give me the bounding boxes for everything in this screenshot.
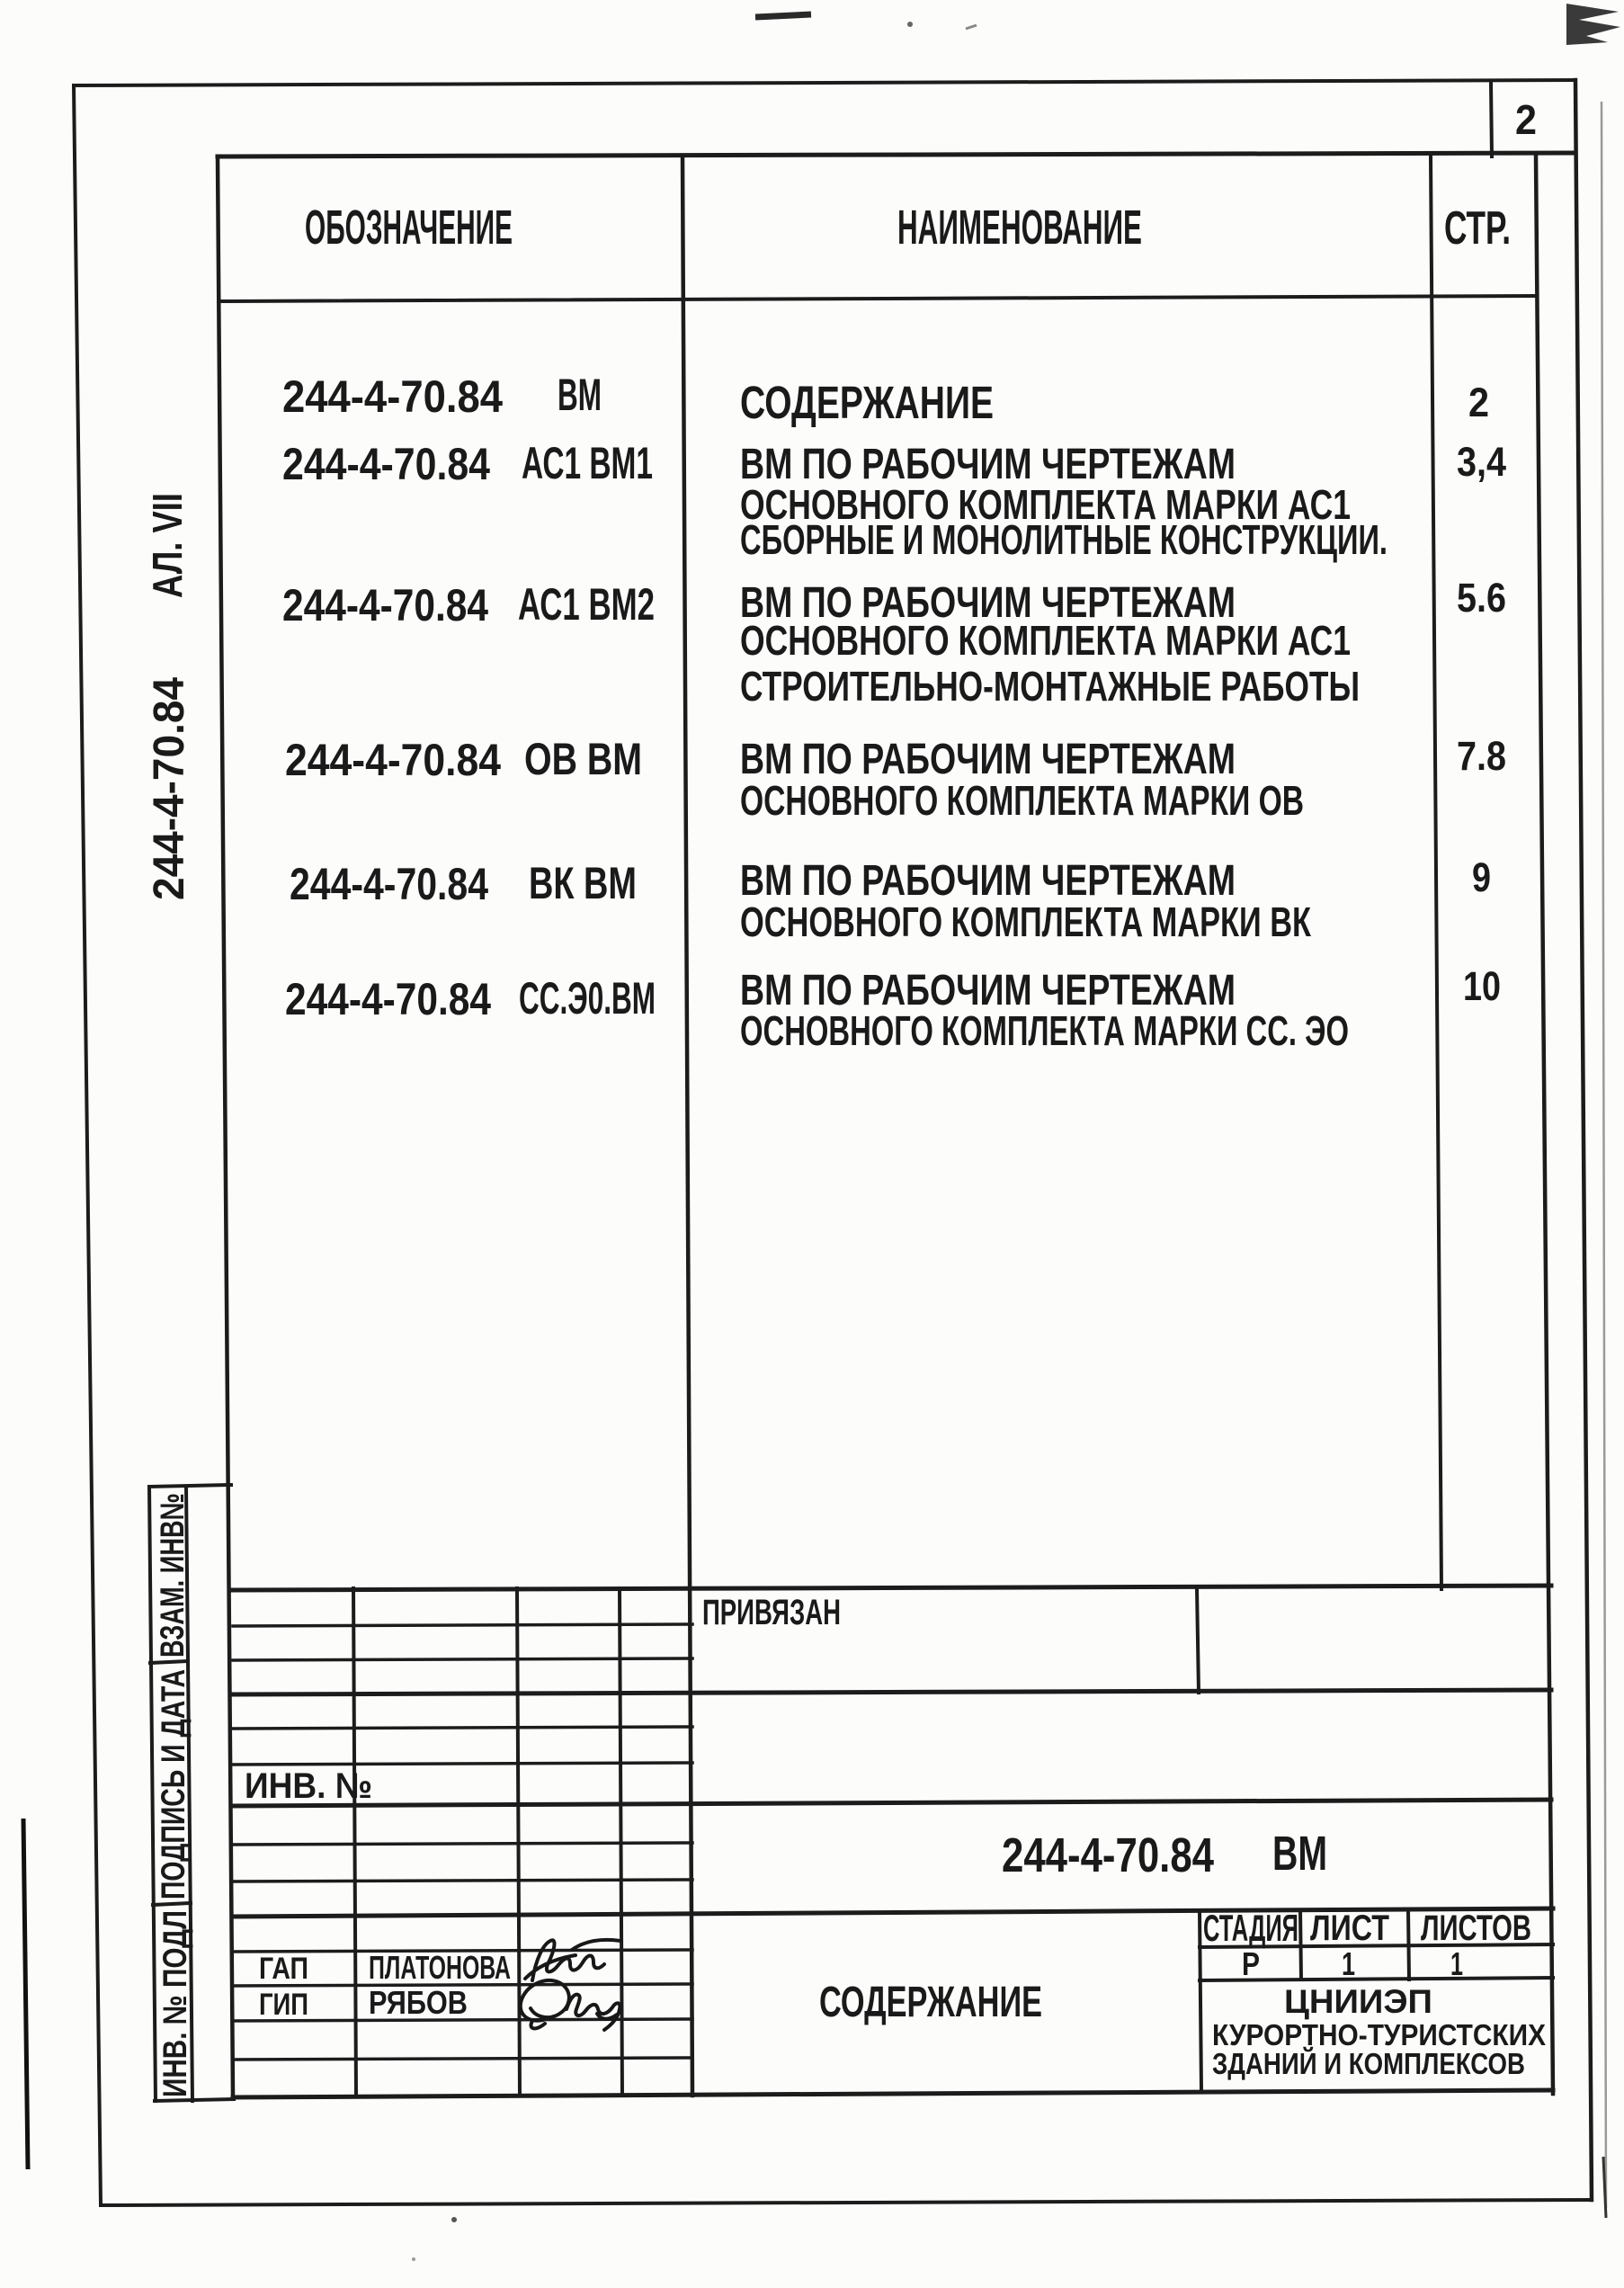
svg-text:АЛ. VII: АЛ. VII <box>144 493 191 598</box>
svg-text:ИНВ. №: ИНВ. № <box>245 1766 372 1806</box>
svg-text:Р: Р <box>1242 1945 1260 1982</box>
svg-text:244-4-70.84: 244-4-70.84 <box>282 439 490 489</box>
svg-text:ЗДАНИЙ И КОМПЛЕКСОВ: ЗДАНИЙ И КОМПЛЕКСОВ <box>1212 2046 1525 2080</box>
svg-text:244-4-70.84: 244-4-70.84 <box>282 580 488 630</box>
svg-text:9: 9 <box>1472 854 1491 900</box>
svg-text:ПОДПИСЬ И ДАТА: ПОДПИСЬ И ДАТА <box>155 1669 192 1899</box>
svg-text:244-4-70.84: 244-4-70.84 <box>1002 1828 1214 1882</box>
svg-text:ЦНИИЭП: ЦНИИЭП <box>1284 1983 1432 2020</box>
svg-text:СТР.: СТР. <box>1444 202 1511 255</box>
svg-text:СТРОИТЕЛЬНО-МОНТАЖНЫЕ РАБОТЫ: СТРОИТЕЛЬНО-МОНТАЖНЫЕ РАБОТЫ <box>740 663 1360 710</box>
svg-text:ГАП: ГАП <box>259 1952 308 1986</box>
svg-text:ВЗАМ. ИНВ№: ВЗАМ. ИНВ№ <box>154 1493 191 1658</box>
svg-text:1: 1 <box>1342 1945 1355 1982</box>
svg-text:ОБОЗНАЧЕНИЕ: ОБОЗНАЧЕНИЕ <box>305 201 513 255</box>
svg-text:2: 2 <box>1468 380 1489 425</box>
svg-text:ВМ: ВМ <box>1272 1827 1327 1881</box>
svg-text:ОСНОВНОГО КОМПЛЕКТА МАРКИ ОВ: ОСНОВНОГО КОМПЛЕКТА МАРКИ ОВ <box>740 777 1304 824</box>
svg-text:ВМ: ВМ <box>558 370 602 420</box>
svg-text:1: 1 <box>1450 1945 1463 1982</box>
svg-text:244-4-70.84: 244-4-70.84 <box>290 859 488 909</box>
svg-text:244-4-70.84: 244-4-70.84 <box>285 735 501 785</box>
svg-text:СОДЕРЖАНИЕ: СОДЕРЖАНИЕ <box>740 377 994 428</box>
svg-text:РЯБОВ: РЯБОВ <box>369 1984 468 2021</box>
svg-text:ПРИВЯЗАН: ПРИВЯЗАН <box>702 1593 841 1632</box>
svg-text:СБОРНЫЕ И МОНОЛИТНЫЕ КОНСТРУКЦ: СБОРНЫЕ И МОНОЛИТНЫЕ КОНСТРУКЦИИ. <box>740 516 1388 563</box>
svg-text:СОДЕРЖАНИЕ: СОДЕРЖАНИЕ <box>819 1979 1042 2026</box>
svg-text:ОСНОВНОГО КОМПЛЕКТА МАРКИ ВК: ОСНОВНОГО КОМПЛЕКТА МАРКИ ВК <box>740 898 1312 945</box>
svg-text:АС1 ВМ1: АС1 ВМ1 <box>522 438 653 488</box>
svg-text:ОВ ВМ: ОВ ВМ <box>524 734 642 784</box>
svg-text:СТАДИЯ: СТАДИЯ <box>1203 1907 1298 1949</box>
svg-text:НАИМЕНОВАНИЕ: НАИМЕНОВАНИЕ <box>897 201 1142 255</box>
svg-text:ЛИСТ: ЛИСТ <box>1310 1908 1389 1948</box>
svg-text:ГИП: ГИП <box>259 1988 308 2022</box>
svg-text:СС.Э0.ВМ: СС.Э0.ВМ <box>519 973 656 1023</box>
svg-text:ВК ВМ: ВК ВМ <box>529 858 637 908</box>
svg-text:АС1 ВМ2: АС1 ВМ2 <box>518 579 655 630</box>
svg-text:ОСНОВНОГО КОМПЛЕКТА МАРКИ АС1: ОСНОВНОГО КОМПЛЕКТА МАРКИ АС1 <box>740 617 1351 664</box>
svg-text:3,4: 3,4 <box>1457 439 1506 485</box>
svg-text:ОСНОВНОГО КОМПЛЕКТА МАРКИ СС.: ОСНОВНОГО КОМПЛЕКТА МАРКИ СС. ЭО <box>740 1007 1349 1054</box>
svg-text:ПЛАТОНОВА: ПЛАТОНОВА <box>369 1949 511 1986</box>
svg-text:7.8: 7.8 <box>1457 733 1506 779</box>
svg-text:244-4-70.84: 244-4-70.84 <box>146 677 193 900</box>
svg-text:ЛИСТОВ: ЛИСТОВ <box>1421 1908 1531 1948</box>
svg-text:10: 10 <box>1463 963 1501 1009</box>
svg-text:ИНВ. № ПОДЛ: ИНВ. № ПОДЛ <box>156 1910 193 2097</box>
svg-text:2: 2 <box>1515 96 1537 143</box>
svg-text:244-4-70.84: 244-4-70.84 <box>282 371 503 422</box>
svg-text:5.6: 5.6 <box>1457 575 1506 621</box>
svg-text:244-4-70.84: 244-4-70.84 <box>285 974 491 1024</box>
